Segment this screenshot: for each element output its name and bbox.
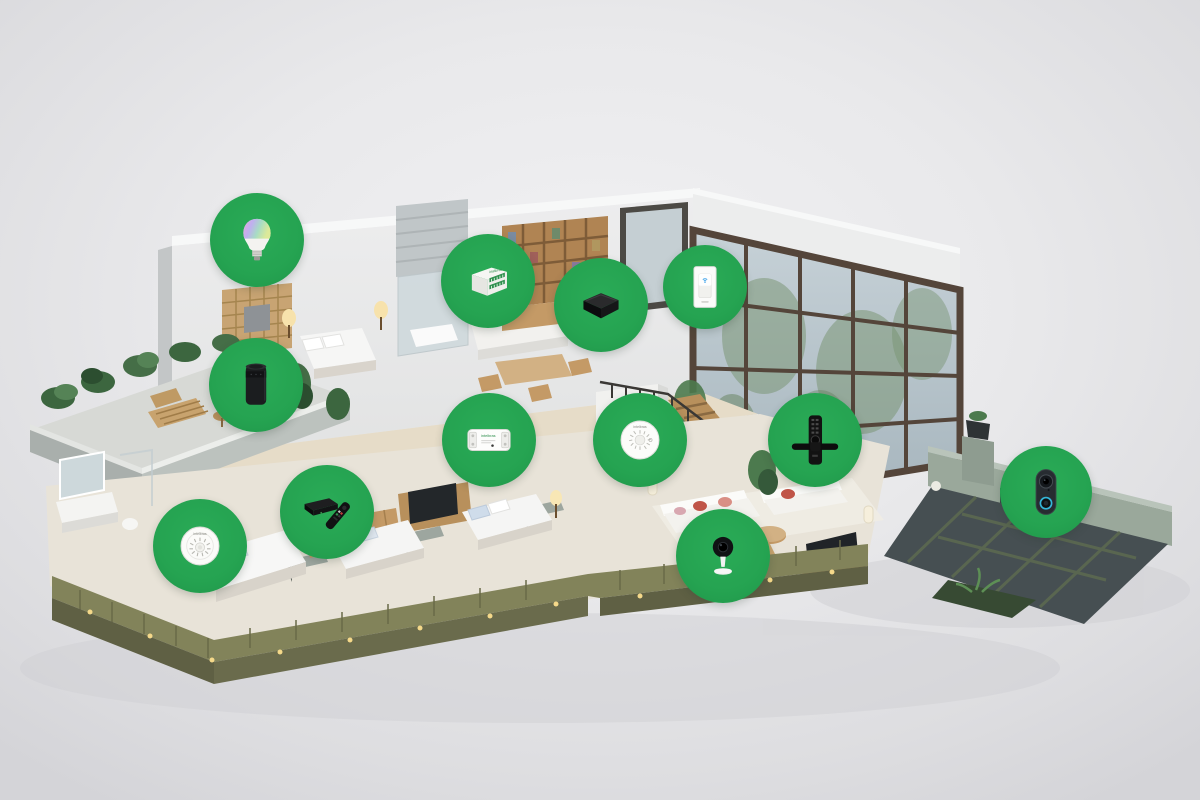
badge-smart-tv-box[interactable] [280, 465, 374, 559]
badge-video-doorbell[interactable] [1000, 446, 1092, 538]
smart-speaker-icon [224, 353, 288, 417]
indoor-camera-icon [691, 524, 755, 588]
badge-relay-module[interactable]: intelbras [441, 234, 535, 328]
tv-box-remote-icon [293, 478, 361, 546]
badge-smart-siren[interactable]: intelbras [593, 393, 687, 487]
house-illustration [0, 0, 1200, 800]
smart-wall-switch-icon [676, 258, 734, 316]
smart-lock-icon [782, 407, 848, 473]
smoke-detector-icon: intelbras [167, 513, 233, 579]
badge-smart-speaker[interactable] [209, 338, 303, 432]
relay-module-icon: intelbras [455, 248, 521, 314]
badge-smart-wall-switch[interactable] [663, 245, 747, 329]
svg-text:intelbras: intelbras [193, 532, 206, 536]
badge-ir-control-box[interactable] [554, 258, 648, 352]
badge-wifi-smart-relay[interactable]: intelbras [442, 393, 536, 487]
svg-text:intelbras: intelbras [481, 434, 496, 438]
badge-smart-door-lock[interactable] [768, 393, 862, 487]
badge-smart-bulb[interactable] [210, 193, 304, 287]
smart-bulb-icon [225, 208, 289, 272]
ir-control-box-icon [568, 272, 634, 338]
svg-text:intelbras: intelbras [633, 425, 646, 429]
video-doorbell-icon [1015, 461, 1077, 523]
smart-home-scene: intelbras intelbras [0, 0, 1200, 800]
badge-indoor-camera[interactable] [676, 509, 770, 603]
wifi-relay-icon: intelbras [456, 407, 522, 473]
smart-siren-icon: intelbras [607, 407, 673, 473]
badge-smoke-detector[interactable]: intelbras [153, 499, 247, 593]
